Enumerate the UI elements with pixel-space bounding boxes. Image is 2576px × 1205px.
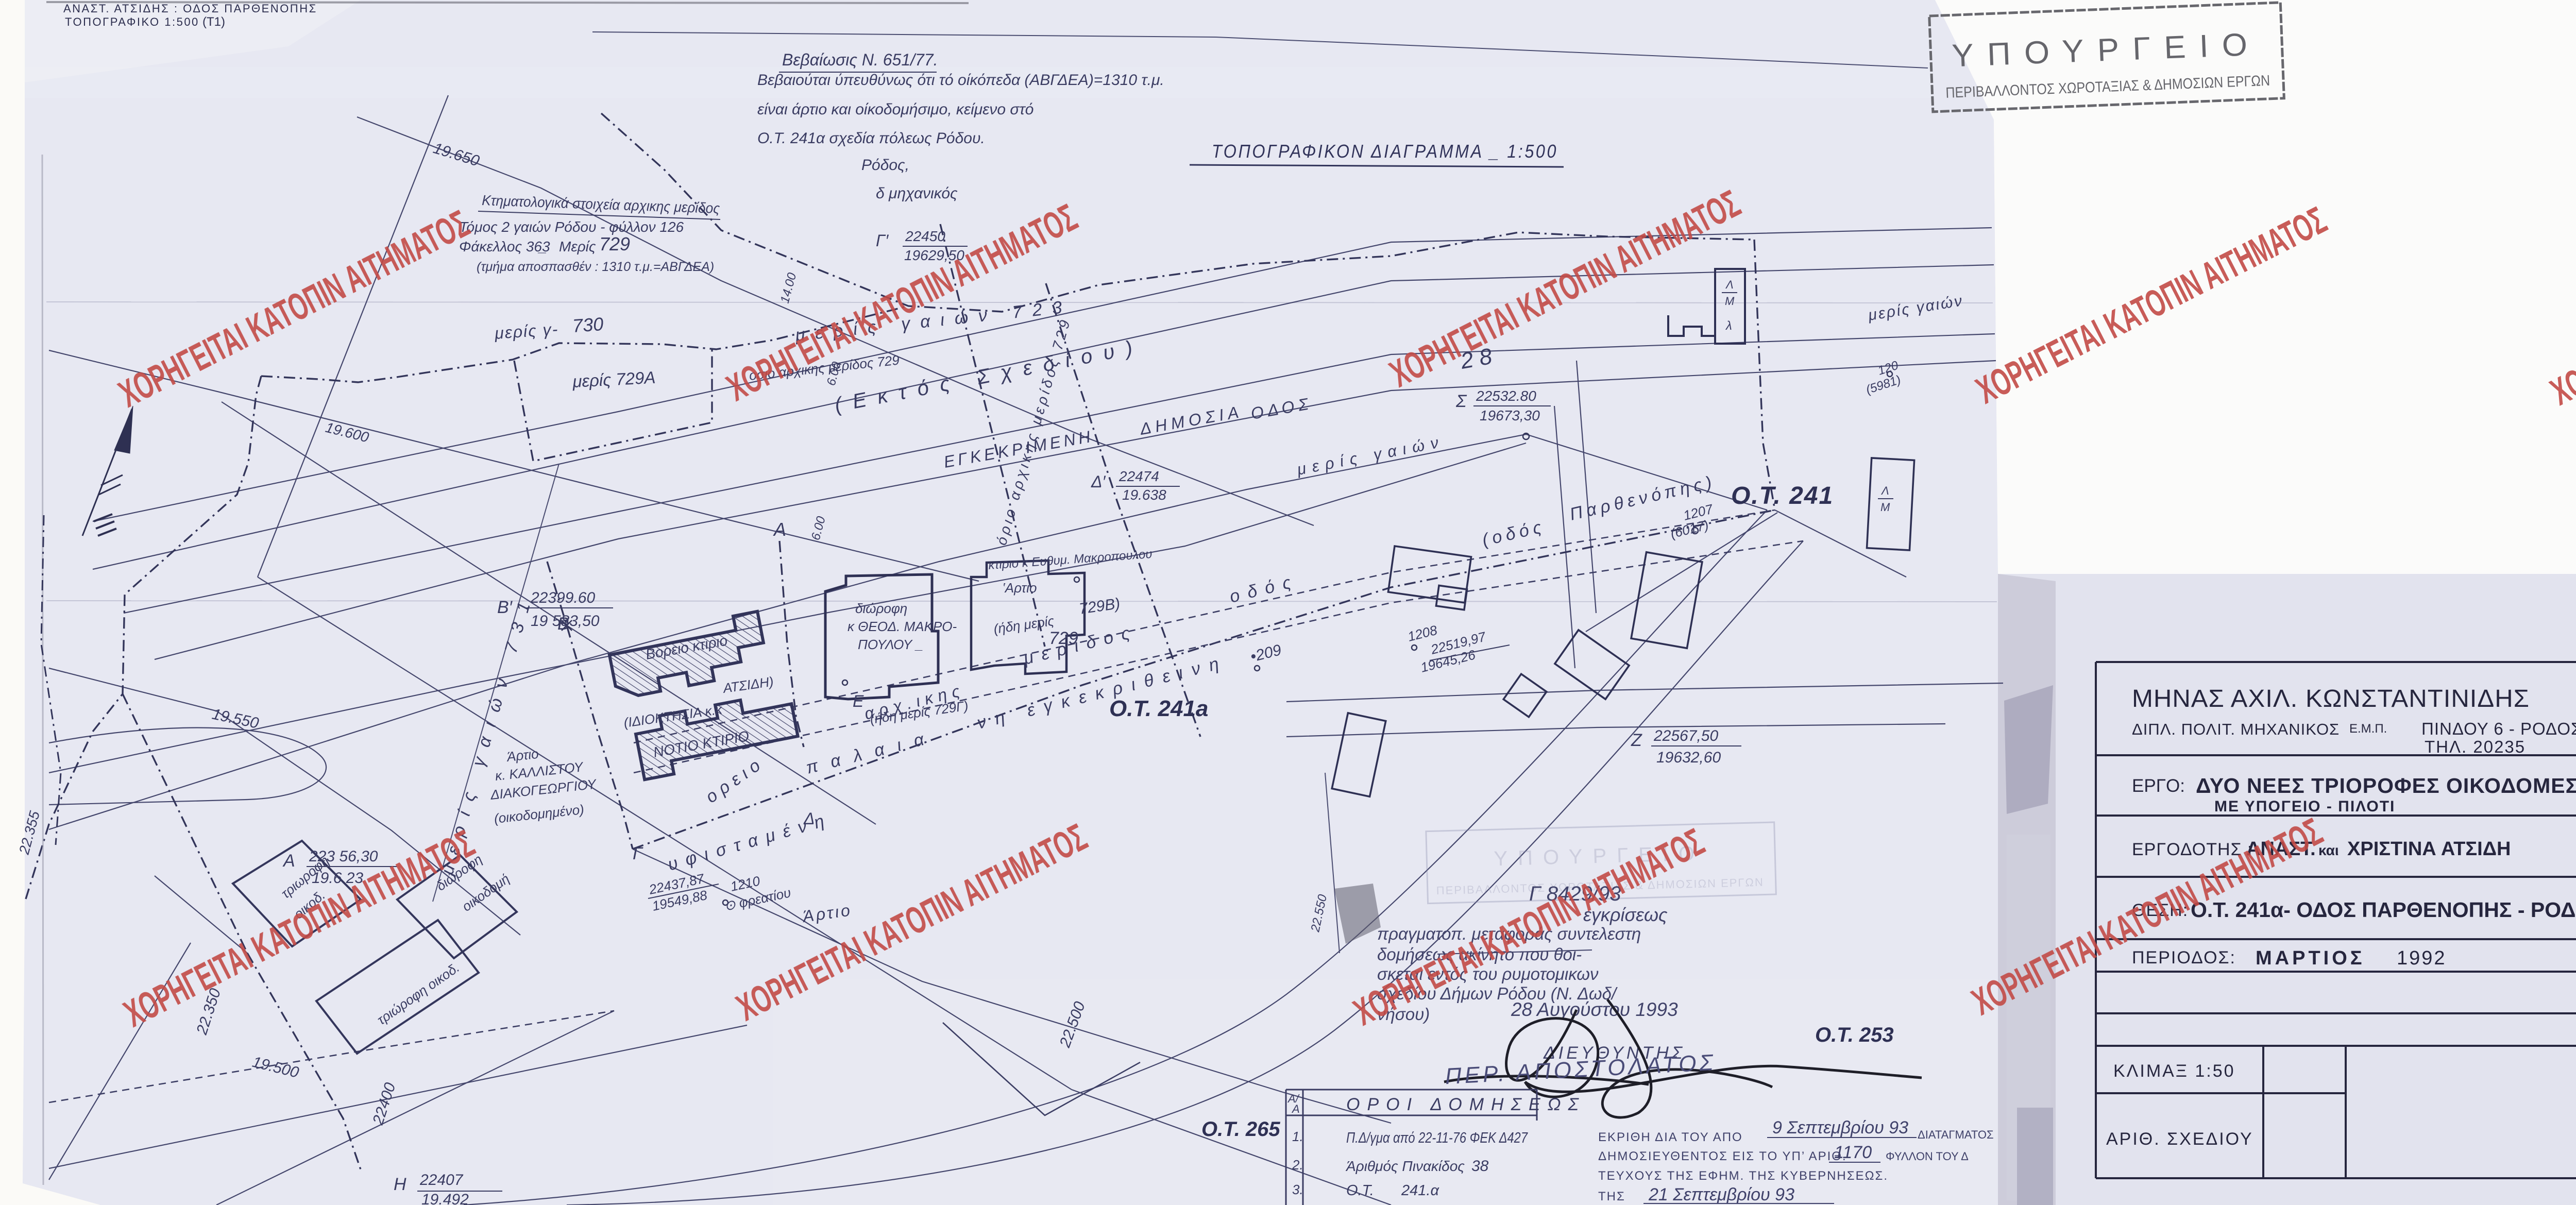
svg-text:Β′: Β′ bbox=[497, 598, 513, 617]
svg-text:241.α: 241.α bbox=[1401, 1182, 1439, 1199]
svg-text:Άριθμός Πινακίδος: Άριθμός Πινακίδος bbox=[1345, 1158, 1465, 1174]
svg-text:λ: λ bbox=[1725, 319, 1732, 333]
svg-text:Ε: Ε bbox=[853, 692, 864, 710]
svg-text:19.638: 19.638 bbox=[1122, 487, 1166, 503]
svg-text:19673,30: 19673,30 bbox=[1480, 408, 1540, 423]
svg-text:Σ: Σ bbox=[1455, 392, 1467, 411]
svg-text:729: 729 bbox=[1049, 629, 1078, 648]
svg-text:22532.80: 22532.80 bbox=[1476, 388, 1536, 404]
svg-text:22567,50: 22567,50 bbox=[1653, 727, 1718, 744]
svg-text:22407: 22407 bbox=[419, 1172, 464, 1189]
svg-text:O.T. 253: O.T. 253 bbox=[1815, 1024, 1894, 1046]
svg-text:Γ: Γ bbox=[633, 844, 643, 863]
svg-text:Μ: Μ bbox=[1880, 501, 1890, 514]
svg-text:9 Σεπτεμβρίου 93: 9 Σεπτεμβρίου 93 bbox=[1772, 1118, 1908, 1138]
svg-text:Ο.Τ. 241α σχεδία πόλεως Ρόδου: Ο.Τ. 241α σχεδία πόλεως Ρόδου. bbox=[757, 130, 985, 147]
svg-text:28 Αυγούστου 1993: 28 Αυγούστου 1993 bbox=[1511, 999, 1678, 1020]
svg-text:22450: 22450 bbox=[905, 228, 945, 244]
svg-text:1.: 1. bbox=[1292, 1129, 1303, 1144]
svg-text:Δ′: Δ′ bbox=[1091, 472, 1106, 491]
svg-text:1992: 1992 bbox=[2397, 947, 2447, 969]
svg-text:Α: Α bbox=[1291, 1102, 1300, 1115]
svg-text:ΚΛΙΜΑΞ 1:50: ΚΛΙΜΑΞ 1:50 bbox=[2113, 1061, 2235, 1081]
svg-text:38: 38 bbox=[1471, 1158, 1489, 1175]
svg-text:19632,60: 19632,60 bbox=[1656, 749, 1721, 766]
svg-text:ΔΙΠΛ. ΠΟΛΙΤ. ΜΗΧΑΝΙΚΟΣ: ΔΙΠΛ. ΠΟΛΙΤ. ΜΗΧΑΝΙΚΟΣ bbox=[2132, 720, 2340, 738]
svg-text:ΦΥΛΛΟΝ ΤΟΥ Δ: ΦΥΛΛΟΝ ΤΟΥ Δ bbox=[1886, 1150, 1969, 1163]
svg-text:730: 730 bbox=[572, 313, 604, 336]
svg-text:22474: 22474 bbox=[1118, 468, 1159, 484]
svg-text:ΠΙΝΔΟΥ 6 - ΡΟΔΟΣ: ΠΙΝΔΟΥ 6 - ΡΟΔΟΣ bbox=[2421, 719, 2576, 738]
svg-text:Μ: Μ bbox=[1725, 295, 1735, 308]
svg-text:ΜΑΡΤΙΟΣ: ΜΑΡΤΙΟΣ bbox=[2256, 947, 2365, 969]
svg-text:729: 729 bbox=[599, 233, 630, 254]
svg-text:ΔΥΟ ΝΕΕΣ ΤΡΙΟΡΟΦΕΣ ΟΙΚΟΔΟΜΕΣ: ΔΥΟ ΝΕΕΣ ΤΡΙΟΡΟΦΕΣ ΟΙΚΟΔΟΜΕΣ bbox=[2196, 774, 2576, 797]
svg-text:Ζ: Ζ bbox=[1631, 731, 1642, 750]
svg-text:O.T. 241a: O.T. 241a bbox=[1109, 696, 1208, 721]
svg-text:Α: Α bbox=[282, 851, 295, 871]
svg-text:Β: Β bbox=[557, 614, 569, 634]
svg-text:Ο.Τ.: Ο.Τ. bbox=[1346, 1182, 1374, 1199]
svg-text:Βεβαίωσις Ν. 651/77.: Βεβαίωσις Ν. 651/77. bbox=[782, 50, 938, 69]
svg-text:ΧΡΙΣΤΙΝΑ ΑΤΣΙΔΗ: ΧΡΙΣΤΙΝΑ ΑΤΣΙΔΗ bbox=[2347, 838, 2511, 860]
svg-text:ΔΙΑΤΑΓΜΑΤΟΣ: ΔΙΑΤΑΓΜΑΤΟΣ bbox=[1918, 1128, 1994, 1141]
svg-text:ΑΝΑΣΤ. ΑΤΣΙΔΗΣ : ΟΔΟΣ ΠΑΡΘΕΝΟΠ: ΑΝΑΣΤ. ΑΤΣΙΔΗΣ : ΟΔΟΣ ΠΑΡΘΕΝΟΠΗΣ bbox=[63, 2, 317, 15]
svg-text:κ ΘΕΟΔ. ΜΑΚΡΟ-: κ ΘΕΟΔ. ΜΑΚΡΟ- bbox=[848, 619, 957, 634]
svg-text:Τόμος 2 γαιών Ρόδου - φύλλον: Τόμος 2 γαιών Ρόδου - φύλλον 126 bbox=[459, 219, 684, 235]
svg-text:ΕΡΓΟ:: ΕΡΓΟ: bbox=[2132, 776, 2185, 796]
svg-text:O.T. 241: O.T. 241 bbox=[1731, 482, 1834, 510]
svg-text:διώροφη: διώροφη bbox=[855, 601, 907, 616]
svg-text:ΠΟΥΛΟΥ _: ΠΟΥΛΟΥ _ bbox=[858, 637, 923, 652]
svg-text:(Τ1): (Τ1) bbox=[202, 15, 225, 29]
svg-text:δ μηχανικός: δ μηχανικός bbox=[876, 185, 958, 202]
svg-text:ΟΡΟΙ ΔΟΜΗΣΕΩΣ: ΟΡΟΙ ΔΟΜΗΣΕΩΣ bbox=[1346, 1095, 1586, 1114]
svg-text:22399.60: 22399.60 bbox=[530, 589, 595, 606]
svg-text:Μερίς: Μερίς bbox=[559, 239, 596, 254]
svg-text:Ρόδος,: Ρόδος, bbox=[861, 157, 909, 174]
svg-text:ΕΚΡΙΘΗ ΔΙΑ ΤΟΥ ΑΠΟ: ΕΚΡΙΘΗ ΔΙΑ ΤΟΥ ΑΠΟ bbox=[1598, 1130, 1743, 1144]
svg-text:ΜΗΝΑΣ ΑΧΙΛ. ΚΩΝΣΤΑΝΤΙΝΙΔΗΣ: ΜΗΝΑΣ ΑΧΙΛ. ΚΩΝΣΤΑΝΤΙΝΙΔΗΣ bbox=[2132, 685, 2530, 712]
svg-text:ΑΡΙΘ. ΣΧΕΔΙΟΥ: ΑΡΙΘ. ΣΧΕΔΙΟΥ bbox=[2106, 1129, 2253, 1149]
svg-text:Α: Α bbox=[773, 519, 786, 540]
svg-text:ΤΗΣ: ΤΗΣ bbox=[1598, 1190, 1625, 1203]
svg-text:Ο.Τ. 241α- ΟΔΟΣ ΠΑΡΘΕΝΟΠΗΣ -: Ο.Τ. 241α- ΟΔΟΣ ΠΑΡΘΕΝΟΠΗΣ - ΡΟΔΟΣ bbox=[2191, 898, 2576, 922]
svg-text:Π.Δ/γμα από 22-11-76 ΦΕΚ Δ427: Π.Δ/γμα από 22-11-76 ΦΕΚ Δ427 bbox=[1346, 1130, 1529, 1146]
svg-text:Λ: Λ bbox=[1725, 278, 1734, 291]
svg-text:είναι άρτιο και οίκοδομήσιμο,: είναι άρτιο και οίκοδομήσιμο, κείμενο στ… bbox=[757, 101, 1033, 118]
svg-text:(τμήμα αποσπασθέν : 1310 τ.μ.=: (τμήμα αποσπασθέν : 1310 τ.μ.=ΑΒΓΔΕΑ) bbox=[477, 260, 714, 274]
svg-text:19.492: 19.492 bbox=[421, 1191, 469, 1205]
svg-text:Λ: Λ bbox=[1880, 484, 1889, 497]
svg-text:Βεβαιούται ύπευθύνως ότι τό οί: Βεβαιούται ύπευθύνως ότι τό οίκόπεδα (ΑΒ… bbox=[757, 72, 1164, 89]
svg-text:ΠΕΡΙΟΔΟΣ:: ΠΕΡΙΟΔΟΣ: bbox=[2132, 948, 2236, 968]
svg-text:ΔΗΜΟΣΙΕΥΘΕΝΤΟΣ ΕΙΣ ΤΟ ΥΠ’ ΑΡΙΘ: ΔΗΜΟΣΙΕΥΘΕΝΤΟΣ ΕΙΣ ΤΟ ΥΠ’ ΑΡΙΘ. bbox=[1598, 1149, 1847, 1163]
svg-text:O.T. 265: O.T. 265 bbox=[1201, 1118, 1280, 1141]
svg-text:ΤΗΛ. 20235: ΤΗΛ. 20235 bbox=[2425, 737, 2526, 756]
svg-text:ΤΟΠΟΓΡΑΦΙΚΟΝ ΔΙΑΓΡΑΜΜΑ _ 1: ΤΟΠΟΓΡΑΦΙΚΟΝ ΔΙΑΓΡΑΜΜΑ _ 1:500 bbox=[1212, 141, 1558, 162]
svg-text:Ε.Μ.Π.: Ε.Μ.Π. bbox=[2349, 722, 2387, 736]
svg-text:21 Σεπτεμβρίου 93: 21 Σεπτεμβρίου 93 bbox=[1648, 1185, 1794, 1204]
svg-text:3.: 3. bbox=[1292, 1182, 1303, 1197]
svg-text:1170: 1170 bbox=[1834, 1143, 1872, 1162]
svg-text:ΤΟΠΟΓΡΑΦΙΚΟ 1:500: ΤΟΠΟΓΡΑΦΙΚΟ 1:500 bbox=[65, 15, 199, 28]
svg-text:_: _ bbox=[537, 239, 547, 254]
svg-text:‛Αρτιο: ‛Αρτιο bbox=[1002, 580, 1037, 596]
svg-text:ΤΕΥΧΟΥΣ ΤΗΣ ΕΦΗΜ. ΤΗΣ ΚΥΒΕΡΝΗΣ: ΤΕΥΧΟΥΣ ΤΗΣ ΕΦΗΜ. ΤΗΣ ΚΥΒΕΡΝΗΣΕΩΣ. bbox=[1598, 1169, 1888, 1183]
svg-text:2.: 2. bbox=[1292, 1157, 1303, 1173]
svg-text:Γ′: Γ′ bbox=[876, 231, 889, 250]
svg-text:Η: Η bbox=[394, 1175, 406, 1194]
